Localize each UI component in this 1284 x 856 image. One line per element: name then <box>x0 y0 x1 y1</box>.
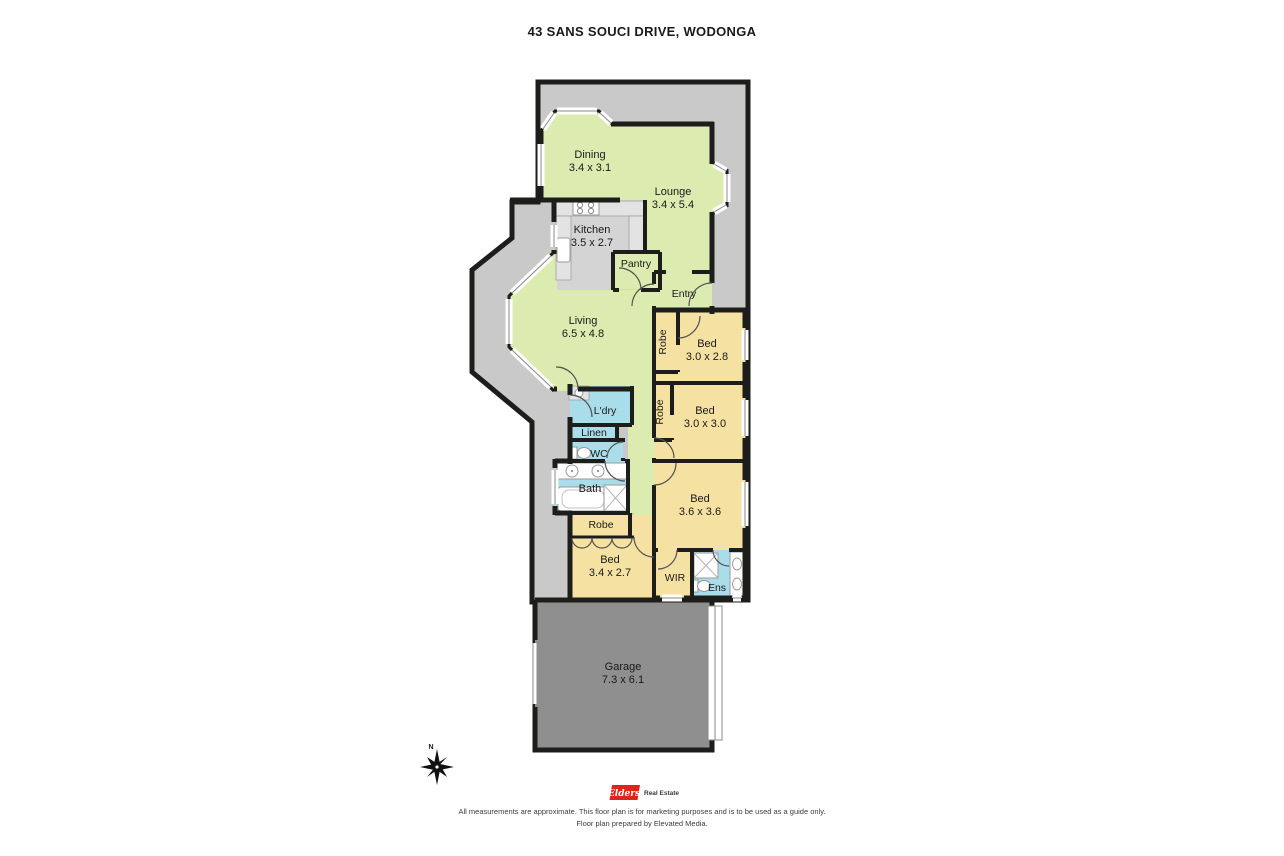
garage-door <box>708 606 722 740</box>
dims-garage: 7.3 x 6.1 <box>602 674 644 686</box>
label-bath: Bath <box>579 483 602 495</box>
dims-bed2: 3.0 x 3.0 <box>684 418 726 430</box>
dims-living: 6.5 x 4.8 <box>562 328 604 340</box>
dims-bed4: 3.4 x 2.7 <box>589 567 631 579</box>
footer: Elders Real Estate All measurements are … <box>459 785 826 828</box>
dims-bed3: 3.6 x 3.6 <box>679 506 721 518</box>
label-kitchen: Kitchen <box>574 224 611 236</box>
brand-logo-text: Elders <box>607 789 640 799</box>
disclaimer-line2: Floor plan prepared by Elevated Media. <box>576 819 707 828</box>
label-robe3: Robe <box>588 519 613 531</box>
compass-north-label: N <box>428 744 433 751</box>
label-bed3: Bed <box>690 493 710 505</box>
disclaimer-line1: All measurements are approximate. This f… <box>459 807 826 816</box>
label-garage: Garage <box>605 661 642 673</box>
label-bed2: Bed <box>695 405 715 417</box>
label-ens: Ens <box>708 582 726 594</box>
floorplan-svg: 43 SANS SOUCI DRIVE, WODONGA <box>0 0 1284 856</box>
kitchen-sink-icon <box>557 238 570 262</box>
page-title: 43 SANS SOUCI DRIVE, WODONGA <box>528 24 757 39</box>
wc-toilet-icon <box>570 447 591 459</box>
label-living: Living <box>569 315 598 327</box>
label-lounge: Lounge <box>655 186 692 198</box>
label-laundry: L'dry <box>594 405 617 417</box>
brand-suffix: Real Estate <box>644 790 679 797</box>
dims-kitchen: 3.5 x 2.7 <box>571 237 613 249</box>
dims-bed1: 3.0 x 2.8 <box>686 351 728 363</box>
cooktop-icon <box>573 201 599 215</box>
label-entry: Entry <box>672 288 697 300</box>
label-robe2: Robe <box>654 399 666 424</box>
label-wir: WIR <box>665 572 686 584</box>
floorplan-page: { "header": { "title": "43 SANS SOUCI DR… <box>0 0 1284 856</box>
compass: N <box>420 744 454 785</box>
label-pantry: Pantry <box>621 258 652 270</box>
label-bed1: Bed <box>697 338 717 350</box>
label-bed4: Bed <box>600 554 620 566</box>
label-robe1: Robe <box>657 329 669 354</box>
label-dining: Dining <box>574 149 605 161</box>
label-wc: WC <box>590 448 608 460</box>
dims-lounge: 3.4 x 5.4 <box>652 199 694 211</box>
label-linen: Linen <box>581 427 607 439</box>
dims-dining: 3.4 x 3.1 <box>569 162 611 174</box>
